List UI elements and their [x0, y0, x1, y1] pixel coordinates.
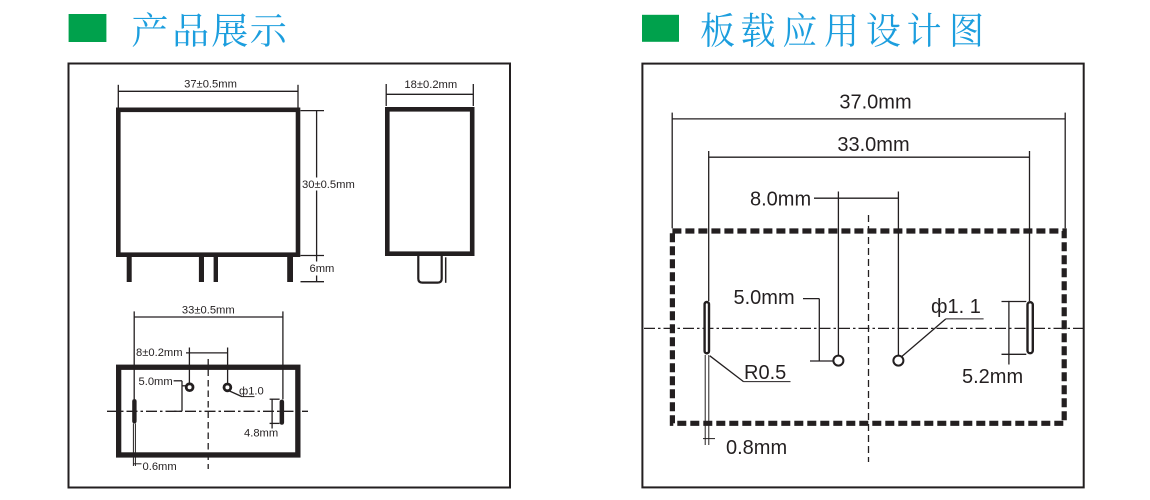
svg-text:R0.5: R0.5 — [744, 362, 786, 384]
svg-text:30±0.5mm: 30±0.5mm — [302, 179, 355, 191]
svg-text:18±0.2mm: 18±0.2mm — [404, 79, 457, 91]
svg-text:5.2mm: 5.2mm — [962, 366, 1023, 388]
svg-text:8.0mm: 8.0mm — [750, 188, 811, 210]
svg-text:5.0mm: 5.0mm — [734, 287, 795, 309]
svg-text:8±0.2mm: 8±0.2mm — [136, 347, 183, 359]
svg-text:ф1. 1: ф1. 1 — [931, 296, 981, 318]
svg-text:0.8mm: 0.8mm — [726, 437, 787, 459]
svg-text:ф1.0: ф1.0 — [239, 385, 264, 397]
svg-text:4.8mm: 4.8mm — [244, 427, 278, 439]
svg-text:33.0mm: 33.0mm — [837, 134, 909, 156]
svg-text:0.6mm: 0.6mm — [143, 461, 177, 473]
svg-text:37.0mm: 37.0mm — [839, 92, 911, 114]
svg-text:5.0mm: 5.0mm — [139, 376, 173, 388]
svg-text:33±0.5mm: 33±0.5mm — [182, 305, 235, 317]
svg-text:6mm: 6mm — [310, 263, 335, 275]
svg-text:37±0.5mm: 37±0.5mm — [184, 78, 237, 90]
